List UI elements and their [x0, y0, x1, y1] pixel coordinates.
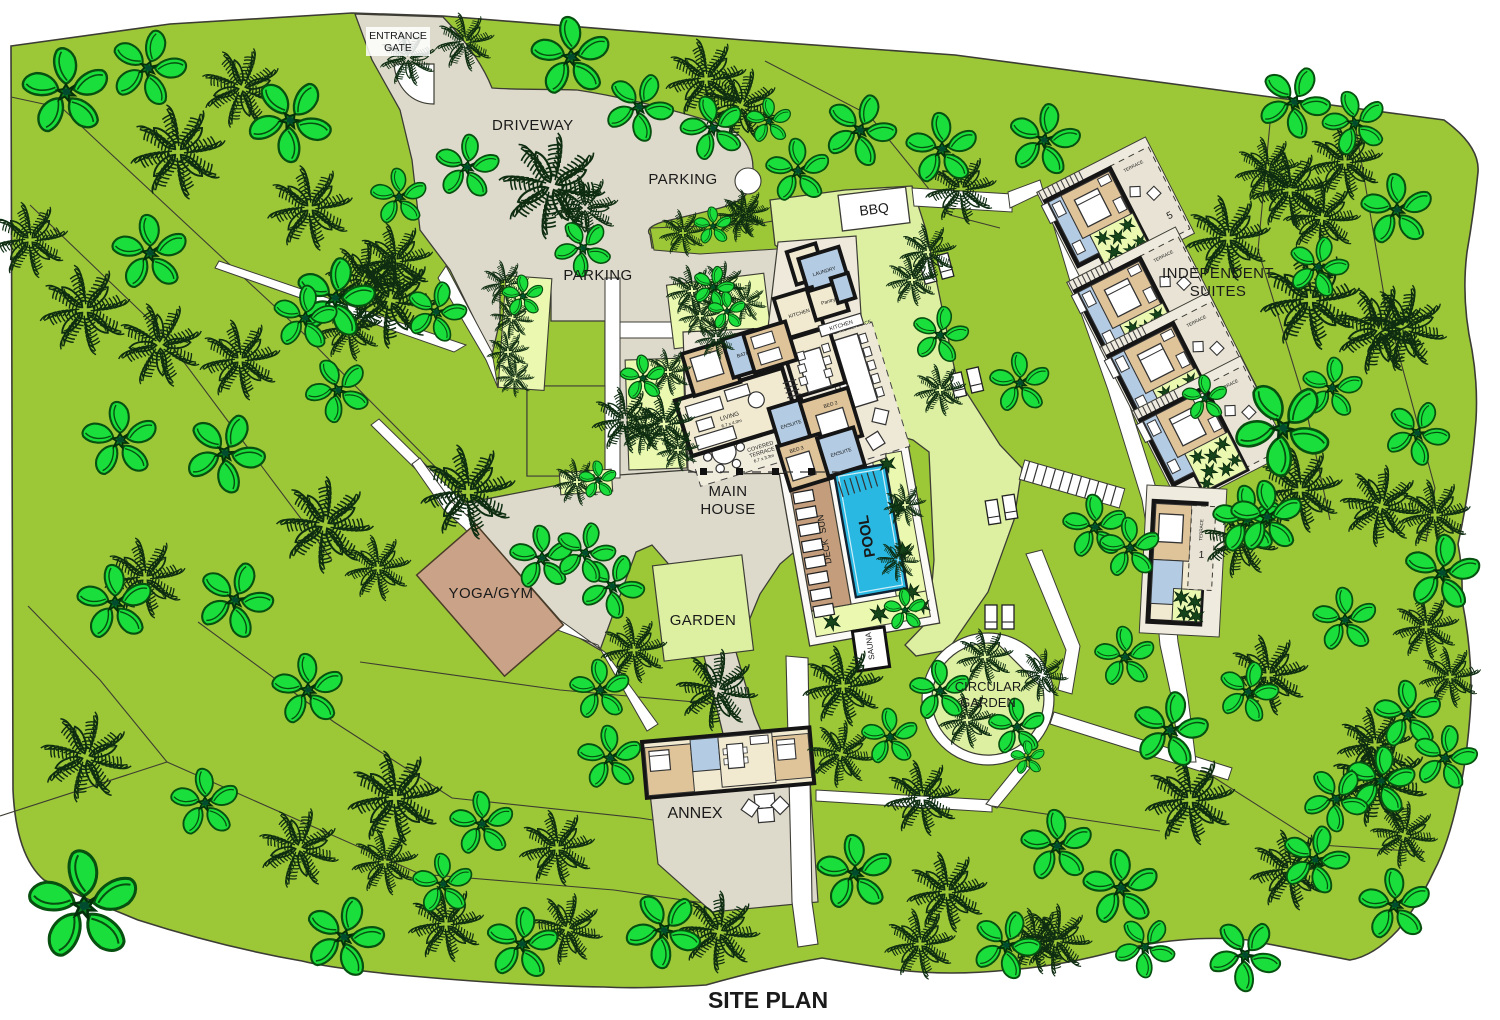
- svg-text:GARDEN: GARDEN: [960, 695, 1016, 710]
- svg-text:SITE PLAN: SITE PLAN: [708, 987, 828, 1013]
- svg-text:DRIVEWAY: DRIVEWAY: [492, 117, 574, 134]
- svg-text:YOGA/GYM: YOGA/GYM: [449, 585, 534, 602]
- svg-text:ANNEX: ANNEX: [667, 805, 722, 822]
- svg-text:INDEPENDENT: INDEPENDENT: [1162, 265, 1274, 282]
- svg-text:GARDEN: GARDEN: [670, 612, 737, 629]
- svg-text:CIRCULAR: CIRCULAR: [955, 679, 1021, 694]
- svg-text:HOUSE: HOUSE: [700, 501, 755, 518]
- svg-text:1: 1: [1198, 550, 1205, 561]
- svg-text:MAIN: MAIN: [708, 483, 747, 500]
- svg-text:PARKING: PARKING: [563, 267, 632, 284]
- svg-text:PARKING: PARKING: [648, 171, 717, 188]
- svg-text:SUITES: SUITES: [1190, 283, 1247, 300]
- svg-text:ENTRANCE: ENTRANCE: [369, 30, 427, 42]
- svg-text:GATE: GATE: [384, 42, 412, 54]
